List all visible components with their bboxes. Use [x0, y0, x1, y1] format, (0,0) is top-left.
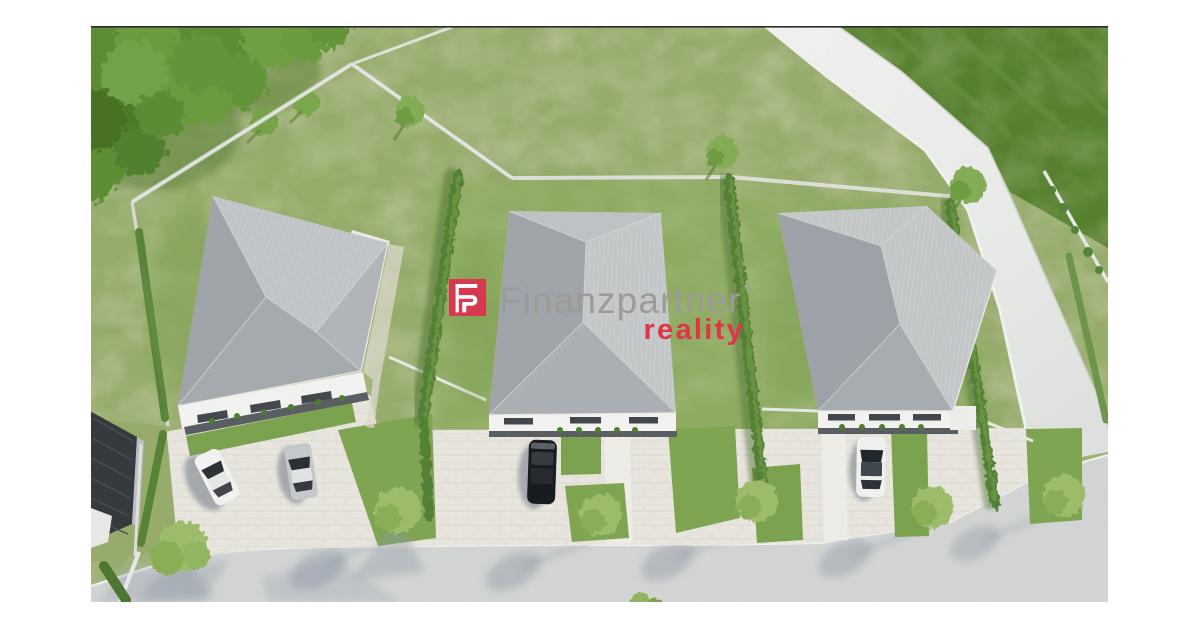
svg-text:reality: reality	[643, 314, 745, 346]
svg-text:®: ®	[744, 282, 751, 292]
